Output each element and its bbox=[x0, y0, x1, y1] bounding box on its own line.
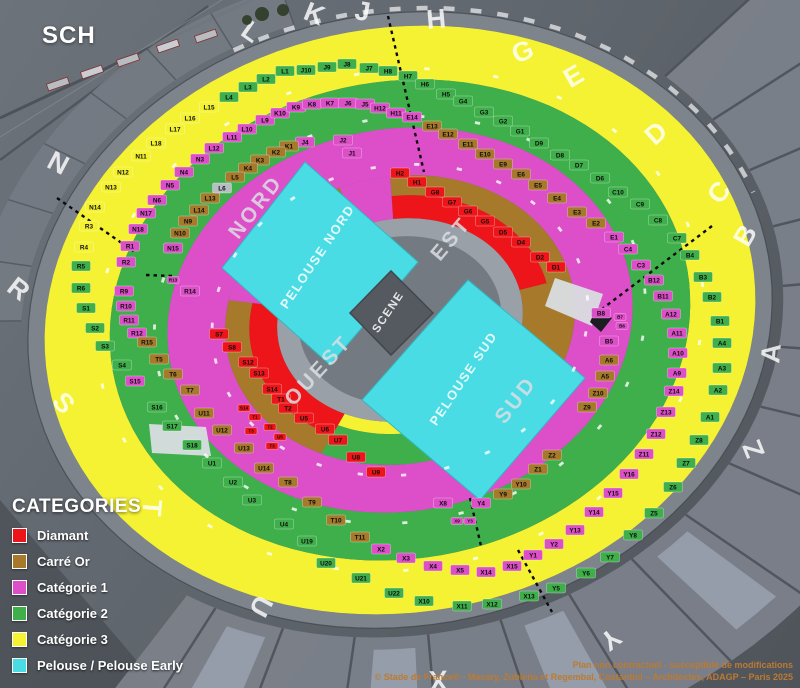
section-G8[interactable]: G8 bbox=[426, 187, 445, 197]
section-N11[interactable]: N11 bbox=[132, 151, 151, 161]
section-N13[interactable]: N13 bbox=[102, 182, 121, 192]
section-G4[interactable]: G4 bbox=[454, 96, 473, 106]
section-C4[interactable]: C4 bbox=[619, 244, 638, 254]
section-Y8[interactable]: Y8 bbox=[624, 530, 643, 540]
section-label: Z2 bbox=[548, 452, 556, 459]
section-Y7[interactable]: Y7 bbox=[601, 552, 620, 562]
section-S2[interactable]: S2 bbox=[86, 323, 105, 333]
section-S13[interactable]: S13 bbox=[250, 368, 269, 378]
section-label: S7 bbox=[215, 331, 223, 338]
section-label: R15 bbox=[141, 339, 153, 346]
vomitory-mark bbox=[403, 569, 408, 572]
vomitory-mark bbox=[402, 521, 407, 524]
section-D5[interactable]: D5 bbox=[494, 227, 513, 237]
section-G5[interactable]: G5 bbox=[476, 216, 495, 226]
section-label: U9 bbox=[372, 469, 381, 476]
section-D4[interactable]: D4 bbox=[512, 237, 531, 247]
section-N3[interactable]: N3 bbox=[191, 154, 210, 164]
section-Y5[interactable]: Y5 bbox=[547, 583, 566, 593]
section-E3[interactable]: E3 bbox=[568, 207, 587, 217]
section-label: C7 bbox=[673, 235, 682, 242]
section-A12[interactable]: A12 bbox=[662, 309, 681, 319]
section-label: L10 bbox=[241, 126, 252, 133]
legend-swatch-categorie-1 bbox=[12, 580, 27, 595]
section-H2[interactable]: H2 bbox=[391, 168, 410, 178]
section-N6[interactable]: N6 bbox=[148, 195, 167, 205]
section-H5[interactable]: H5 bbox=[437, 89, 456, 99]
legend-item-categorie-3: Catégorie 3 bbox=[12, 631, 183, 647]
section-label: X3 bbox=[402, 555, 410, 562]
vomitory-mark bbox=[701, 282, 704, 287]
section-E12[interactable]: E12 bbox=[439, 129, 458, 139]
section-label: S14 bbox=[240, 406, 249, 411]
section-J1[interactable]: J1 bbox=[343, 148, 362, 158]
section-K7[interactable]: K7 bbox=[321, 98, 340, 108]
section-label: E1 bbox=[610, 234, 618, 241]
section-label: X10 bbox=[418, 598, 430, 605]
section-B6[interactable]: B6 bbox=[616, 323, 628, 330]
section-G7[interactable]: G7 bbox=[443, 197, 462, 207]
section-B5[interactable]: B5 bbox=[600, 336, 619, 346]
section-label: L17 bbox=[169, 126, 180, 133]
section-U5[interactable]: U5 bbox=[295, 413, 314, 423]
section-label: H2 bbox=[396, 170, 405, 177]
section-label: R3 bbox=[85, 223, 94, 230]
section-label: U3 bbox=[248, 497, 257, 504]
section-H1[interactable]: H1 bbox=[408, 177, 427, 187]
section-label: A3 bbox=[718, 365, 727, 372]
section-label: S17 bbox=[166, 423, 178, 430]
section-L11[interactable]: L11 bbox=[223, 132, 242, 142]
section-label: L12 bbox=[208, 145, 219, 152]
section-H6[interactable]: H6 bbox=[416, 79, 435, 89]
section-label: N17 bbox=[140, 210, 152, 217]
legend-item-carre-or: Carré Or bbox=[12, 553, 183, 569]
section-K8[interactable]: K8 bbox=[303, 99, 322, 109]
section-label: Y6 bbox=[582, 570, 590, 577]
section-X12[interactable]: X12 bbox=[483, 599, 502, 609]
section-X14[interactable]: X14 bbox=[477, 567, 496, 577]
section-R11[interactable]: R11 bbox=[120, 315, 139, 325]
section-U14[interactable]: U14 bbox=[255, 463, 274, 473]
section-J2[interactable]: J2 bbox=[334, 135, 353, 145]
section-Y13[interactable]: Y13 bbox=[566, 525, 585, 535]
section-Y2[interactable]: Y2 bbox=[545, 539, 564, 549]
section-label: U1 bbox=[208, 460, 217, 467]
section-R1[interactable]: R1 bbox=[121, 241, 140, 251]
section-label: U20 bbox=[320, 560, 332, 567]
section-J9[interactable]: J9 bbox=[318, 62, 337, 72]
section-X10[interactable]: X10 bbox=[415, 596, 434, 606]
section-H8[interactable]: H8 bbox=[379, 66, 398, 76]
section-J8[interactable]: J8 bbox=[338, 59, 357, 69]
section-L4[interactable]: L4 bbox=[220, 92, 239, 102]
section-label: H7 bbox=[404, 73, 413, 80]
section-S7[interactable]: S7 bbox=[210, 329, 229, 339]
section-label: S13 bbox=[253, 370, 265, 377]
section-label: U22 bbox=[388, 590, 400, 597]
section-L3[interactable]: L3 bbox=[239, 82, 258, 92]
section-B2[interactable]: B2 bbox=[703, 292, 722, 302]
section-label: S2 bbox=[91, 325, 99, 332]
section-U2[interactable]: U2 bbox=[224, 477, 243, 487]
section-L13[interactable]: L13 bbox=[201, 193, 220, 203]
section-label: J8 bbox=[343, 61, 351, 68]
section-G1[interactable]: G1 bbox=[511, 126, 530, 136]
section-B12[interactable]: B12 bbox=[645, 275, 664, 285]
section-S18[interactable]: S18 bbox=[183, 440, 202, 450]
section-T7[interactable]: T7 bbox=[181, 385, 200, 395]
section-label: C8 bbox=[654, 217, 663, 224]
section-label: B3 bbox=[699, 274, 708, 281]
section-U3[interactable]: U3 bbox=[243, 495, 262, 505]
section-label: S18 bbox=[186, 442, 198, 449]
section-label: J5 bbox=[361, 101, 369, 108]
section-L15[interactable]: L15 bbox=[200, 102, 219, 112]
section-label: A5 bbox=[601, 373, 610, 380]
section-A9[interactable]: A9 bbox=[668, 368, 687, 378]
section-X11[interactable]: X11 bbox=[453, 601, 472, 611]
section-label: G5 bbox=[481, 218, 490, 225]
section-D9[interactable]: D9 bbox=[530, 138, 549, 148]
section-label: J7 bbox=[365, 65, 373, 72]
section-label: J4 bbox=[301, 139, 309, 146]
section-K4[interactable]: K4 bbox=[239, 163, 258, 173]
section-S4[interactable]: S4 bbox=[113, 360, 132, 370]
section-E14[interactable]: E14 bbox=[403, 112, 422, 122]
section-X4[interactable]: X4 bbox=[424, 561, 443, 571]
section-label: U7 bbox=[334, 437, 343, 444]
section-T8[interactable]: T8 bbox=[279, 477, 298, 487]
section-T10[interactable]: T10 bbox=[327, 515, 346, 525]
section-label: B2 bbox=[708, 294, 717, 301]
section-A5[interactable]: A5 bbox=[596, 371, 615, 381]
section-G3[interactable]: G3 bbox=[475, 107, 494, 117]
section-label: R11 bbox=[123, 317, 135, 324]
section-label: E11 bbox=[462, 141, 473, 148]
section-L6[interactable]: L6 bbox=[213, 183, 232, 193]
section-E1[interactable]: E1 bbox=[605, 232, 624, 242]
section-S8[interactable]: S8 bbox=[223, 342, 242, 352]
section-Y15[interactable]: Y15 bbox=[604, 488, 623, 498]
section-G6[interactable]: G6 bbox=[459, 206, 478, 216]
section-label: X5 bbox=[456, 567, 464, 574]
section-label: U5 bbox=[300, 415, 309, 422]
section-label: L15 bbox=[203, 104, 214, 111]
section-Z9[interactable]: Z9 bbox=[578, 402, 597, 412]
section-label: U13 bbox=[238, 445, 250, 452]
section-label: D1 bbox=[552, 264, 561, 271]
section-label: T3 bbox=[248, 429, 254, 434]
section-Z1[interactable]: Z1 bbox=[529, 464, 548, 474]
vehicle bbox=[46, 77, 69, 91]
section-B7[interactable]: B7 bbox=[614, 314, 626, 321]
section-X3[interactable]: X3 bbox=[397, 553, 416, 563]
section-Y10[interactable]: Y10 bbox=[512, 479, 531, 489]
section-T1[interactable]: T1 bbox=[249, 414, 261, 421]
section-label: E14 bbox=[406, 114, 418, 121]
section-label: J9 bbox=[323, 64, 331, 71]
footer-disclaimer: Plan non contractuel - susceptible de mo… bbox=[375, 659, 793, 683]
section-label: Y9 bbox=[499, 491, 507, 498]
section-Z11[interactable]: Z11 bbox=[635, 449, 654, 459]
section-S3[interactable]: S3 bbox=[96, 341, 115, 351]
section-R2[interactable]: R2 bbox=[117, 257, 136, 267]
section-S14[interactable]: S14 bbox=[263, 384, 282, 394]
section-T9[interactable]: T9 bbox=[303, 497, 322, 507]
section-Y3[interactable]: Y3 bbox=[464, 518, 476, 525]
section-label: L4 bbox=[225, 94, 233, 101]
section-J10[interactable]: J10 bbox=[297, 65, 316, 75]
section-T6[interactable]: T6 bbox=[164, 369, 183, 379]
section-U5[interactable]: U5 bbox=[274, 434, 286, 441]
section-E4[interactable]: E4 bbox=[548, 193, 567, 203]
section-S1[interactable]: S1 bbox=[77, 303, 96, 313]
section-Z12[interactable]: Z12 bbox=[647, 429, 666, 439]
section-S14[interactable]: S14 bbox=[238, 405, 250, 412]
section-N12[interactable]: N12 bbox=[114, 167, 133, 177]
section-label: T2 bbox=[284, 405, 292, 412]
section-X13[interactable]: X13 bbox=[520, 591, 539, 601]
section-label: J10 bbox=[301, 67, 312, 74]
section-D6[interactable]: D6 bbox=[591, 173, 610, 183]
section-B11[interactable]: B11 bbox=[654, 291, 673, 301]
section-N17[interactable]: N17 bbox=[137, 208, 156, 218]
section-label: E2 bbox=[592, 220, 600, 227]
section-A4[interactable]: A4 bbox=[713, 338, 732, 348]
section-R9[interactable]: R9 bbox=[115, 286, 134, 296]
section-label: U19 bbox=[301, 538, 313, 545]
section-label: T8 bbox=[284, 479, 292, 486]
section-label: R14 bbox=[184, 288, 196, 295]
section-R6[interactable]: R6 bbox=[72, 283, 91, 293]
section-C9[interactable]: C9 bbox=[631, 199, 650, 209]
section-R10[interactable]: R10 bbox=[117, 301, 136, 311]
section-L1[interactable]: L1 bbox=[276, 66, 295, 76]
section-label: K2 bbox=[272, 149, 281, 156]
section-label: N15 bbox=[167, 245, 179, 252]
section-Z2[interactable]: Z2 bbox=[543, 450, 562, 460]
section-label: N4 bbox=[180, 169, 189, 176]
section-L2[interactable]: L2 bbox=[257, 74, 276, 84]
section-H7[interactable]: H7 bbox=[399, 71, 418, 81]
section-C8[interactable]: C8 bbox=[649, 215, 668, 225]
section-Y16[interactable]: Y16 bbox=[620, 469, 639, 479]
section-A6[interactable]: A6 bbox=[600, 355, 619, 365]
section-C10[interactable]: C10 bbox=[609, 187, 628, 197]
section-label: R4 bbox=[80, 244, 89, 251]
section-X5[interactable]: X5 bbox=[451, 565, 470, 575]
section-U20[interactable]: U20 bbox=[317, 558, 336, 568]
section-label: N3 bbox=[196, 156, 205, 163]
section-label: S3 bbox=[101, 343, 109, 350]
section-U7[interactable]: U7 bbox=[329, 435, 348, 445]
section-X15[interactable]: X15 bbox=[503, 561, 522, 571]
section-label: Y1 bbox=[529, 552, 537, 559]
section-E2[interactable]: E2 bbox=[587, 218, 606, 228]
section-N5[interactable]: N5 bbox=[161, 180, 180, 190]
section-E11[interactable]: E11 bbox=[459, 139, 478, 149]
section-G2[interactable]: G2 bbox=[494, 116, 513, 126]
section-N9[interactable]: N9 bbox=[179, 216, 198, 226]
section-T3[interactable]: T3 bbox=[245, 428, 257, 435]
section-L5[interactable]: L5 bbox=[226, 172, 245, 182]
section-R13[interactable]: R13 bbox=[167, 277, 179, 284]
section-A2[interactable]: A2 bbox=[709, 385, 728, 395]
section-label: U14 bbox=[258, 465, 270, 472]
section-Z13[interactable]: Z13 bbox=[657, 407, 676, 417]
section-D2[interactable]: D2 bbox=[531, 252, 550, 262]
section-label: G4 bbox=[459, 98, 468, 105]
section-label: T11 bbox=[355, 534, 366, 541]
section-S15[interactable]: S15 bbox=[126, 376, 145, 386]
section-X9[interactable]: X9 bbox=[451, 518, 463, 525]
section-T2[interactable]: T2 bbox=[264, 424, 276, 431]
section-label: T10 bbox=[330, 517, 341, 524]
section-label: L5 bbox=[231, 174, 239, 181]
section-label: N10 bbox=[174, 230, 186, 237]
section-R12[interactable]: R12 bbox=[128, 328, 147, 338]
section-U12[interactable]: U12 bbox=[213, 425, 232, 435]
section-B8[interactable]: B8 bbox=[592, 308, 611, 318]
section-label: T7 bbox=[186, 387, 194, 394]
section-N18[interactable]: N18 bbox=[129, 224, 148, 234]
section-label: K9 bbox=[292, 104, 301, 111]
section-label: U6 bbox=[321, 426, 330, 433]
vomitory-mark bbox=[401, 474, 406, 477]
section-label: R2 bbox=[122, 259, 131, 266]
section-S16[interactable]: S16 bbox=[148, 402, 167, 412]
section-L17[interactable]: L17 bbox=[166, 124, 185, 134]
section-label: G1 bbox=[516, 128, 525, 135]
section-D7[interactable]: D7 bbox=[570, 160, 589, 170]
section-label: E6 bbox=[517, 171, 525, 178]
section-Y4[interactable]: Y4 bbox=[472, 498, 491, 508]
section-E6[interactable]: E6 bbox=[512, 169, 531, 179]
section-S12[interactable]: S12 bbox=[239, 357, 258, 367]
section-L18[interactable]: L18 bbox=[147, 138, 166, 148]
section-E9[interactable]: E9 bbox=[494, 159, 513, 169]
section-T11[interactable]: T11 bbox=[351, 532, 370, 542]
section-U8[interactable]: U8 bbox=[347, 452, 366, 462]
footer-line-1: Plan non contractuel - susceptible de mo… bbox=[375, 659, 793, 671]
section-label: A1 bbox=[706, 414, 715, 421]
section-J7[interactable]: J7 bbox=[360, 63, 379, 73]
section-L12[interactable]: L12 bbox=[205, 143, 224, 153]
section-label: T1 bbox=[252, 415, 258, 420]
section-label: A6 bbox=[605, 357, 614, 364]
section-R14[interactable]: R14 bbox=[181, 286, 200, 296]
footer-line-2: © Stade de France® - Macary, Zublena et … bbox=[375, 671, 793, 683]
section-A3[interactable]: A3 bbox=[713, 363, 732, 373]
section-Z8[interactable]: Z8 bbox=[690, 435, 709, 445]
section-label: L9 bbox=[261, 117, 269, 124]
section-R3[interactable]: R3 bbox=[80, 221, 99, 231]
stadium-seating-map-page: { "title": "SCH", "colors": { "diamant":… bbox=[0, 0, 800, 688]
section-N14[interactable]: N14 bbox=[86, 202, 105, 212]
section-Z7[interactable]: Z7 bbox=[677, 458, 696, 468]
section-label: N6 bbox=[153, 197, 162, 204]
section-label: Y2 bbox=[550, 541, 558, 548]
section-T3[interactable]: T3 bbox=[266, 443, 278, 450]
section-N10[interactable]: N10 bbox=[171, 228, 190, 238]
section-A1[interactable]: A1 bbox=[701, 412, 720, 422]
section-X8[interactable]: X8 bbox=[434, 498, 453, 508]
section-label: E5 bbox=[534, 182, 542, 189]
section-U19[interactable]: U19 bbox=[298, 536, 317, 546]
section-L14[interactable]: L14 bbox=[190, 205, 209, 215]
section-label: G2 bbox=[499, 118, 508, 125]
section-label: S14 bbox=[266, 386, 278, 393]
section-J6[interactable]: J6 bbox=[339, 98, 358, 108]
section-label: L6 bbox=[218, 185, 226, 192]
section-N4[interactable]: N4 bbox=[175, 167, 194, 177]
section-Z10[interactable]: Z10 bbox=[589, 388, 608, 398]
section-C3[interactable]: C3 bbox=[632, 260, 651, 270]
section-Y14[interactable]: Y14 bbox=[585, 507, 604, 517]
section-label: K1 bbox=[285, 143, 294, 150]
section-label: S12 bbox=[242, 359, 254, 366]
section-B4[interactable]: B4 bbox=[681, 250, 700, 260]
section-Z14[interactable]: Z14 bbox=[665, 386, 684, 396]
section-B1[interactable]: B1 bbox=[711, 316, 730, 326]
section-R4[interactable]: R4 bbox=[75, 242, 94, 252]
section-U9[interactable]: U9 bbox=[367, 467, 386, 477]
section-X2[interactable]: X2 bbox=[372, 544, 391, 554]
section-U22[interactable]: U22 bbox=[385, 588, 404, 598]
section-E5[interactable]: E5 bbox=[529, 180, 548, 190]
section-C7[interactable]: C7 bbox=[668, 233, 687, 243]
section-U4[interactable]: U4 bbox=[275, 519, 294, 529]
section-U13[interactable]: U13 bbox=[235, 443, 254, 453]
section-Z6[interactable]: Z6 bbox=[664, 482, 683, 492]
section-label: Z1 bbox=[534, 466, 542, 473]
section-Z5[interactable]: Z5 bbox=[645, 508, 664, 518]
section-A11[interactable]: A11 bbox=[668, 328, 687, 338]
section-Y6[interactable]: Y6 bbox=[577, 568, 596, 578]
section-label: N5 bbox=[166, 182, 175, 189]
section-U21[interactable]: U21 bbox=[352, 573, 371, 583]
section-L16[interactable]: L16 bbox=[181, 113, 200, 123]
section-U6[interactable]: U6 bbox=[316, 424, 335, 434]
section-label: S1 bbox=[82, 305, 90, 312]
section-label: R10 bbox=[120, 303, 132, 310]
section-E10[interactable]: E10 bbox=[476, 149, 495, 159]
section-D1[interactable]: D1 bbox=[547, 262, 566, 272]
section-T5[interactable]: T5 bbox=[150, 354, 169, 364]
section-B3[interactable]: B3 bbox=[694, 272, 713, 282]
section-label: E12 bbox=[442, 131, 454, 138]
section-label: B11 bbox=[657, 293, 669, 300]
section-label: H12 bbox=[374, 105, 386, 112]
section-Y1[interactable]: Y1 bbox=[524, 550, 543, 560]
section-U11[interactable]: U11 bbox=[195, 408, 214, 418]
section-R15[interactable]: R15 bbox=[138, 337, 157, 347]
vomitory-mark bbox=[424, 67, 429, 70]
section-label: Z10 bbox=[592, 390, 603, 397]
section-R5[interactable]: R5 bbox=[72, 261, 91, 271]
section-A10[interactable]: A10 bbox=[669, 348, 688, 358]
section-label: Z12 bbox=[650, 431, 661, 438]
section-D8[interactable]: D8 bbox=[551, 150, 570, 160]
section-N15[interactable]: N15 bbox=[164, 243, 183, 253]
section-S17[interactable]: S17 bbox=[163, 421, 182, 431]
section-U1[interactable]: U1 bbox=[203, 458, 222, 468]
legend-swatch-pelouse bbox=[12, 658, 27, 673]
section-label: G6 bbox=[464, 208, 473, 215]
section-Y9[interactable]: Y9 bbox=[494, 489, 513, 499]
section-label: K8 bbox=[308, 101, 317, 108]
